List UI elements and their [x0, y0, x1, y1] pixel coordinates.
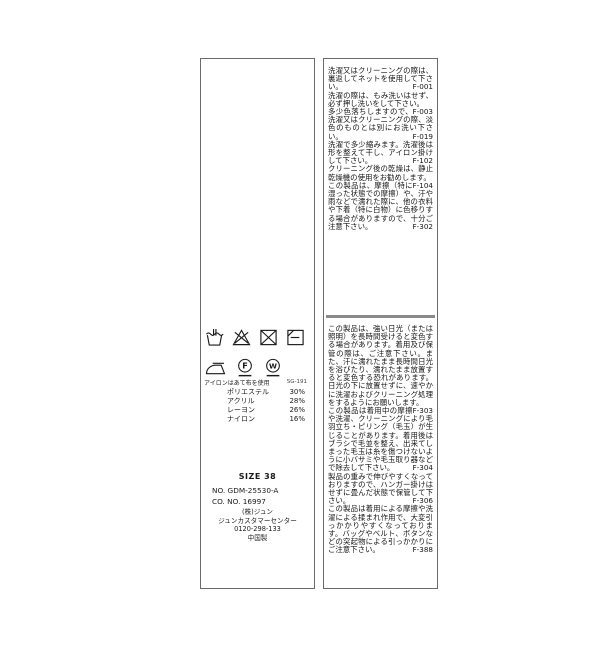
- care-instruction: この製品は、強い日光（または照明）を長時間受けると変色する場合があります。着用及…: [328, 325, 433, 407]
- dry-clean-f-gentle-icon: F: [235, 358, 255, 377]
- instruction-code: F-302: [413, 223, 433, 231]
- flat-dry-in-shade-icon: [285, 328, 306, 347]
- care-symbols-row-1: [204, 328, 306, 347]
- customer-center: ジュンカスタマーセンター: [201, 517, 314, 526]
- wet-clean-w-gentle-icon: W: [263, 358, 283, 377]
- svg-text:W: W: [269, 362, 277, 371]
- fiber-name: ナイロン: [227, 415, 255, 424]
- size-label: SIZE 38: [201, 472, 314, 481]
- phone-number: 0120-298-133: [201, 525, 314, 534]
- instruction-text: この製品は、強い日光（または照明）を長時間受けると変色する場合があります。着用及…: [328, 324, 433, 407]
- do-not-tumble-dry-icon: [258, 328, 279, 347]
- composition-row: ナイロン 16%: [227, 415, 305, 424]
- fiber-percent: 30%: [289, 388, 305, 397]
- composition-row: アクリル 28%: [227, 397, 305, 406]
- care-instruction: この製品は、摩擦（特に湿った状態での摩擦）や、汗や雨などで濡れた際に、他の衣料や…: [328, 182, 433, 231]
- fiber-name: レーヨン: [227, 406, 255, 415]
- instruction-text: 洗濯の際は、もみ洗いはせず、必ず押し洗いをして下さい。: [328, 91, 433, 108]
- care-instruction: 洗濯で多少縮みます。洗濯後は形を整えて干し、アイロン掛けして下さい。F-102: [328, 141, 433, 166]
- lot-number: SG-191: [287, 379, 307, 385]
- fiber-percent: 28%: [289, 397, 305, 406]
- instruction-text: クリーニング後の乾燥は、静止乾燥機の使用をお勧めします。: [328, 164, 433, 181]
- company-info: (株)ジュン ジュンカスタマーセンター 0120-298-133 中国製: [201, 508, 314, 542]
- iron-note: アイロンはあて布を使用: [204, 378, 270, 387]
- care-instruction: 製品の重みで伸びやすくなっておりますので、ハンガー掛けはせずに畳んだ状態で保管し…: [328, 473, 433, 506]
- instruction-text: この製品は着用中の摩擦や洗濯、クリーニングにより毛羽立ち・ピリング（毛玉）が生じ…: [328, 406, 433, 472]
- care-symbols-row-2: F W: [204, 358, 283, 377]
- fiber-percent: 26%: [289, 406, 305, 415]
- country-of-origin: 中国製: [201, 534, 314, 543]
- fiber-name: ポリエステル: [227, 388, 269, 397]
- care-label-photo: { "page": { "background": "#ffffff" }, "…: [0, 0, 600, 650]
- item-number: NO. GDM-25530-A: [212, 486, 278, 495]
- care-instruction: クリーニング後の乾燥は、静止乾燥機の使用をお勧めします。F-104: [328, 165, 433, 181]
- fiber-name: アクリル: [227, 397, 255, 406]
- fabric-composition: ポリエステル 30% アクリル 28% レーヨン 26% ナイロン 16%: [227, 388, 305, 424]
- company-name: (株)ジュン: [201, 508, 314, 517]
- care-instruction: 洗濯の際は、もみ洗いはせず、必ず押し洗いをして下さい。F-003: [328, 92, 433, 108]
- instruction-code: F-388: [413, 546, 433, 554]
- co-number: CO. NO. 16997: [212, 497, 266, 506]
- care-instructions-bottom: この製品は、強い日光（または照明）を長時間受けると変色する場合があります。着用及…: [324, 318, 437, 555]
- svg-text:F: F: [242, 361, 248, 371]
- care-instructions-top: 洗濯又はクリーニングの際は、裏返してネットを使用して下さい。F-001 洗濯の際…: [324, 59, 437, 315]
- care-instruction: 洗濯又はクリーニングの際は、裏返してネットを使用して下さい。F-001: [328, 67, 433, 92]
- iron-with-cloth-icon: [204, 360, 227, 377]
- fiber-percent: 16%: [289, 415, 305, 424]
- hand-wash-icon: [204, 328, 225, 347]
- care-instructions-label: 洗濯又はクリーニングの際は、裏返してネットを使用して下さい。F-001 洗濯の際…: [323, 58, 438, 589]
- do-not-bleach-icon: [231, 328, 252, 347]
- composition-row: ポリエステル 30%: [227, 388, 305, 397]
- care-instruction: この製品は着用中の摩擦や洗濯、クリーニングにより毛羽立ち・ピリング（毛玉）が生じ…: [328, 407, 433, 473]
- care-instruction: この製品は着用による摩擦や洗濯による揉まれ作用で、大変引っかかりやすくなっており…: [328, 505, 433, 554]
- composition-row: レーヨン 26%: [227, 406, 305, 415]
- composition-label: F W アイロンはあて布を使用 SG-191 ポリエステル 30% アクリル 2…: [200, 58, 315, 589]
